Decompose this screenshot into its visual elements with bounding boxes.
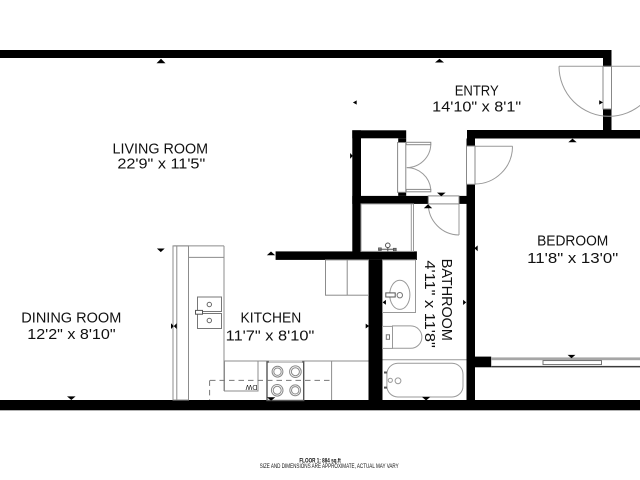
svg-text:ENTRY: ENTRY [455, 83, 499, 100]
svg-text:BATHROOM: BATHROOM [438, 259, 455, 341]
svg-text:DW: DW [245, 383, 257, 390]
svg-text:22'9" x 11'5": 22'9" x 11'5" [117, 156, 205, 173]
svg-text:11'8" x 13'0": 11'8" x 13'0" [527, 250, 618, 267]
svg-text:4'11" x 11'8": 4'11" x 11'8" [421, 260, 438, 348]
svg-text:11'7" x 8'10": 11'7" x 8'10" [226, 328, 315, 345]
svg-text:DINING ROOM: DINING ROOM [21, 310, 121, 327]
svg-text:14'10" x 8'1": 14'10" x 8'1" [432, 99, 521, 116]
svg-text:SIZE AND DIMENSIONS ARE APPROX: SIZE AND DIMENSIONS ARE APPROXIMATE, ACT… [260, 463, 400, 470]
svg-text:12'2" x 8'10": 12'2" x 8'10" [27, 326, 115, 343]
svg-text:KITCHEN: KITCHEN [241, 310, 302, 327]
svg-text:BEDROOM: BEDROOM [537, 232, 608, 249]
